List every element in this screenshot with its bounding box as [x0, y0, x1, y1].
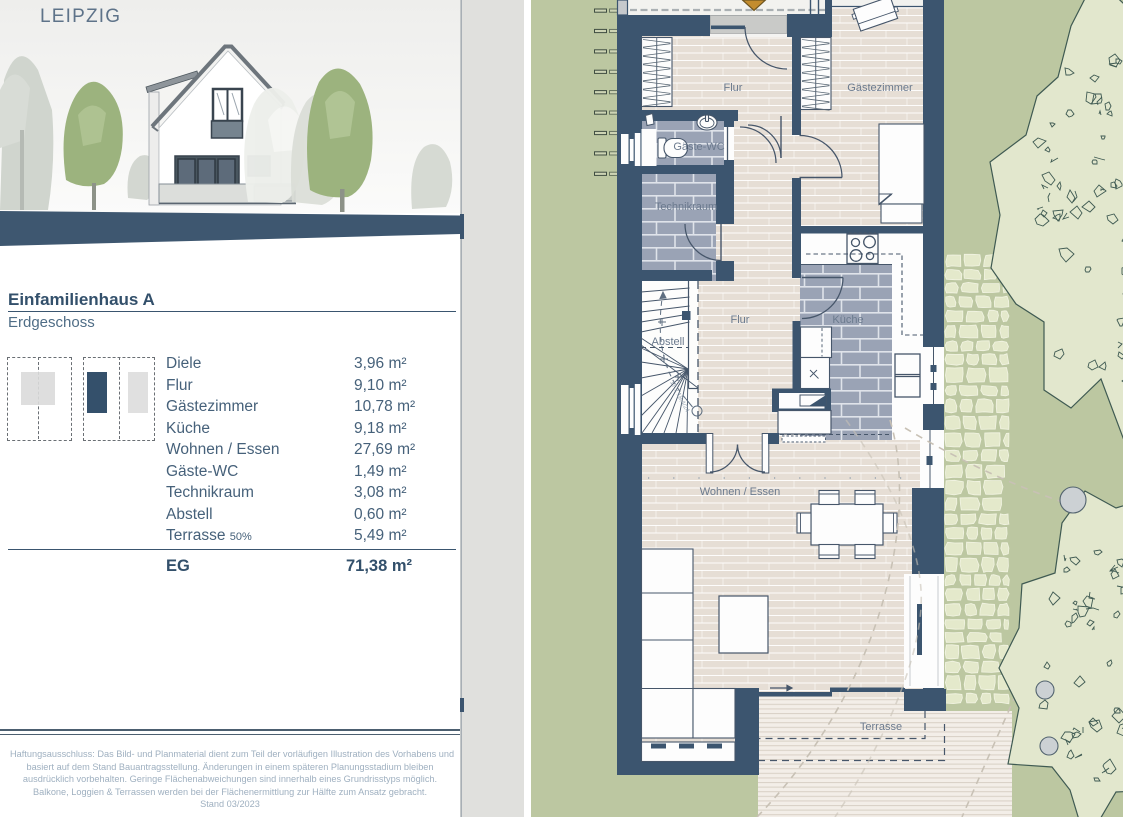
- svg-text:Abstell: Abstell: [651, 336, 684, 348]
- svg-text:Küche: Küche: [832, 314, 863, 326]
- svg-text:Flur: Flur: [724, 82, 743, 94]
- svg-text:Terrasse: Terrasse: [860, 721, 902, 733]
- svg-text:Wohnen / Essen: Wohnen / Essen: [700, 486, 781, 498]
- svg-text:Flur: Flur: [731, 314, 750, 326]
- svg-text:Gästezimmer: Gästezimmer: [847, 82, 913, 94]
- svg-text:Gäste-WC: Gäste-WC: [673, 141, 724, 153]
- svg-text:Technikraum: Technikraum: [655, 201, 717, 213]
